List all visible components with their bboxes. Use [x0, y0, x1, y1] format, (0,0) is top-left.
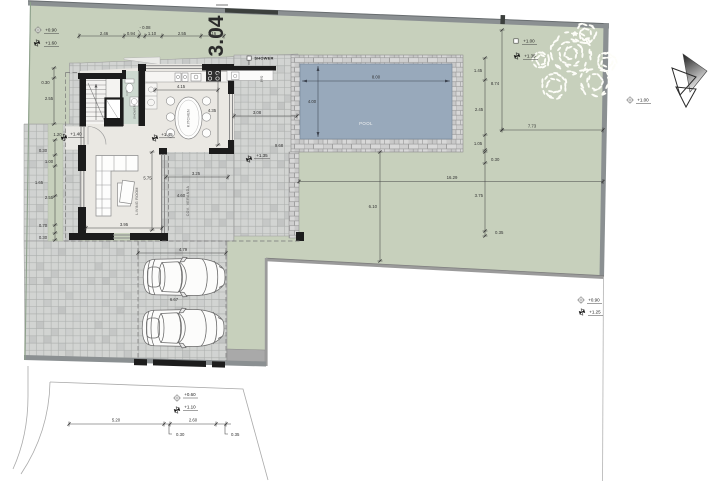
svg-text:0.35: 0.35 — [495, 230, 504, 235]
svg-text:SHOWER: SHOWER — [133, 104, 137, 119]
svg-text:3.75: 3.75 — [475, 193, 484, 198]
svg-text:2.60: 2.60 — [189, 418, 198, 423]
svg-text:KITCHEN: KITCHEN — [187, 109, 191, 127]
svg-text:COV. VERANDA: COV. VERANDA — [186, 185, 190, 216]
svg-text:1.16: 1.16 — [208, 31, 217, 36]
svg-text:6.10: 6.10 — [369, 204, 378, 209]
svg-text:+1.35: +1.35 — [256, 153, 268, 158]
svg-text:4.35: 4.35 — [208, 108, 217, 113]
svg-text:+1.40: +1.40 — [70, 132, 82, 137]
svg-text:0.30: 0.30 — [39, 235, 48, 240]
svg-text:2.55: 2.55 — [45, 96, 54, 101]
svg-text:16.29: 16.29 — [447, 175, 458, 180]
svg-text:1.00: 1.00 — [45, 159, 54, 164]
svg-text:5.20: 5.20 — [112, 418, 121, 423]
svg-text:3.25: 3.25 — [192, 171, 201, 176]
svg-text:0.94: 0.94 — [127, 31, 136, 36]
svg-text:8.74: 8.74 — [491, 81, 500, 86]
svg-text:0.30: 0.30 — [39, 148, 48, 153]
svg-text:4.00: 4.00 — [308, 99, 317, 104]
svg-text:POOL: POOL — [359, 121, 373, 126]
svg-text:4.60: 4.60 — [177, 193, 186, 198]
svg-text:4.15: 4.15 — [177, 84, 186, 89]
svg-text:8.00: 8.00 — [372, 75, 381, 80]
svg-text:SHOWER: SHOWER — [254, 56, 273, 61]
svg-text:+0.60: +0.60 — [184, 392, 196, 397]
svg-text:+1.00: +1.00 — [637, 98, 649, 103]
svg-text:0.70: 0.70 — [39, 223, 48, 228]
svg-text:+1.10: +1.10 — [184, 405, 196, 410]
svg-text:0.30: 0.30 — [491, 157, 500, 162]
svg-text:- 0.08: - 0.08 — [140, 25, 152, 30]
svg-text:9.68: 9.68 — [275, 143, 284, 148]
svg-text:0.30: 0.30 — [176, 432, 185, 437]
svg-text:0.35: 0.35 — [231, 432, 240, 437]
svg-text:1.45: 1.45 — [474, 68, 483, 73]
svg-text:4.79: 4.79 — [179, 247, 188, 252]
svg-text:5.75: 5.75 — [143, 176, 152, 181]
svg-text:+0.90: +0.90 — [45, 28, 57, 33]
svg-text:+1.35: +1.35 — [524, 54, 536, 59]
svg-text:BBQ: BBQ — [260, 75, 264, 82]
svg-text:+1.45: +1.45 — [161, 132, 173, 137]
svg-text:7.73: 7.73 — [528, 124, 537, 129]
svg-text:2.55: 2.55 — [178, 31, 187, 36]
svg-text:2.45: 2.45 — [475, 107, 484, 112]
svg-text:1.65: 1.65 — [35, 180, 44, 185]
svg-text:0.30: 0.30 — [41, 80, 50, 85]
svg-text:LIVING ROOM: LIVING ROOM — [135, 187, 139, 214]
svg-text:3.08: 3.08 — [253, 110, 262, 115]
svg-text:F.05: F.05 — [125, 90, 129, 95]
svg-text:3.95: 3.95 — [120, 222, 129, 227]
svg-text:1.05: 1.05 — [474, 141, 483, 146]
svg-text:+0.90: +0.90 — [588, 298, 600, 303]
svg-text:2.46: 2.46 — [100, 31, 109, 36]
svg-text:2.55: 2.55 — [45, 195, 54, 200]
svg-text:+1.60: +1.60 — [45, 41, 57, 46]
svg-text:1.20: 1.20 — [53, 132, 62, 137]
svg-text:+1.00: +1.00 — [523, 39, 535, 44]
svg-text:+1.25: +1.25 — [589, 310, 601, 315]
svg-text:6.67: 6.67 — [170, 297, 179, 302]
svg-text:1.10: 1.10 — [148, 31, 157, 36]
